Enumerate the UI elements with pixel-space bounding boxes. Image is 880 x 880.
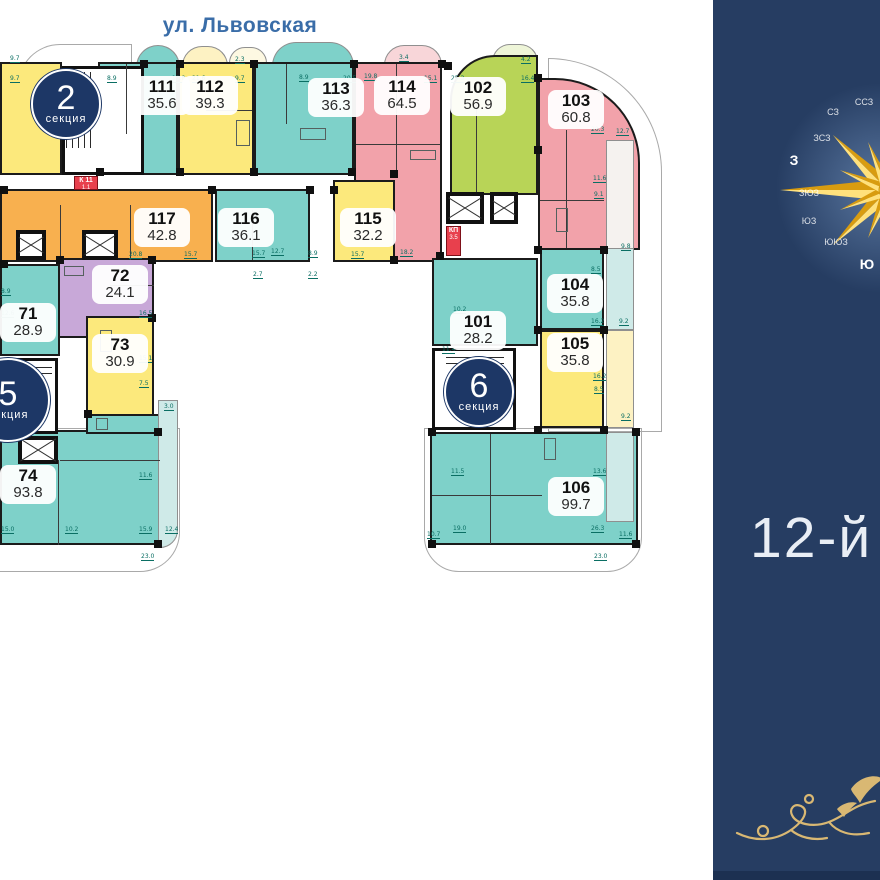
- structural-column: [84, 410, 92, 418]
- structural-column: [632, 540, 640, 548]
- unit-number: 114: [380, 78, 424, 96]
- bath-fixture: [410, 150, 436, 160]
- dimension-label: 8.5: [594, 386, 604, 394]
- section-word: секция: [459, 401, 500, 413]
- unit-label-116[interactable]: 116 36.1: [218, 208, 274, 247]
- dimension-label: 11.6: [593, 175, 606, 183]
- unit-number: 73: [98, 336, 142, 354]
- structural-column: [96, 168, 104, 176]
- unit-area: 35.8: [553, 353, 597, 369]
- section-number: 5: [0, 379, 17, 409]
- structural-column: [600, 326, 608, 334]
- structural-column: [176, 60, 184, 68]
- service-room-k11: К 11 1.1: [74, 176, 98, 190]
- unit-number: 74: [6, 467, 50, 485]
- structural-column: [154, 540, 162, 548]
- unit-area: 56.9: [456, 97, 500, 113]
- unit-area: 28.2: [456, 331, 500, 347]
- dimension-label: 12.7: [271, 248, 284, 256]
- balcony-103: [606, 140, 634, 250]
- dimension-label: 26.3: [591, 525, 604, 533]
- sidebar: ССЗСЗЗСЗЗЗЮЗЮЗЮЮЗЮ 12-й: [713, 0, 880, 880]
- partition: [60, 460, 160, 461]
- unit-number: 105: [553, 335, 597, 353]
- dimension-label: 2.7: [253, 271, 263, 279]
- dimension-label: 8.9: [308, 250, 318, 258]
- compass-direction-ЮЮЗ: ЮЮЗ: [824, 237, 848, 247]
- dimension-label: 9.2: [621, 413, 631, 421]
- unit-number: 72: [98, 267, 142, 285]
- structural-column: [436, 252, 444, 260]
- dimension-label: 11.6: [619, 531, 632, 539]
- unit-label-117[interactable]: 117 42.8: [134, 208, 190, 247]
- unit-area: 28.9: [6, 323, 50, 339]
- structural-column: [534, 146, 542, 154]
- elevator-3: [16, 230, 46, 260]
- compass-direction-ЗСЗ: ЗСЗ: [813, 133, 830, 143]
- unit-number: 113: [314, 80, 358, 98]
- partition: [286, 64, 287, 124]
- structural-column: [208, 186, 216, 194]
- section-word: секция: [0, 409, 28, 421]
- compass-direction-ЗЮЗ: ЗЮЗ: [799, 188, 819, 198]
- unit-number: 104: [553, 276, 597, 294]
- structural-column: [250, 168, 258, 176]
- service-room-label: КП: [447, 227, 460, 235]
- unit-number: 111: [140, 78, 184, 96]
- dimension-label: 7.5: [139, 380, 149, 388]
- unit-area: 30.9: [98, 354, 142, 370]
- elevator-5: [18, 436, 58, 464]
- dimension-label: 3.0: [164, 403, 174, 411]
- elevator-2: [490, 192, 518, 224]
- dimension-label: 12.4: [165, 526, 178, 534]
- dimension-label: 18.2: [400, 249, 413, 257]
- unit-area: 35.6: [140, 96, 184, 112]
- unit-label-74[interactable]: 74 93.8: [0, 465, 56, 504]
- structural-column: [428, 428, 436, 436]
- dimension-label: 23.0: [141, 553, 154, 561]
- unit-label-106[interactable]: 106 99.7: [548, 477, 604, 516]
- service-room-kp: КП 3.5: [446, 226, 461, 256]
- structural-column: [534, 426, 542, 434]
- dimension-label: 8.5: [591, 266, 601, 274]
- section-6-badge: 6 секция: [444, 357, 514, 427]
- unit-number: 101: [456, 313, 500, 331]
- elevator-1: [446, 192, 484, 224]
- dimension-label: 8.9: [1, 288, 11, 296]
- dimension-label: 10.2: [65, 526, 78, 534]
- structural-column: [330, 186, 338, 194]
- structural-column: [56, 256, 64, 264]
- floor-number-label: 12-й: [750, 505, 872, 571]
- dimension-label: 12.7: [616, 128, 629, 136]
- dimension-label: 23.0: [594, 553, 607, 561]
- dimension-label: 9.7: [10, 75, 20, 83]
- unit-label-103[interactable]: 103 60.8: [548, 90, 604, 129]
- dimension-label: 13.6: [593, 468, 606, 476]
- partition: [356, 144, 440, 145]
- structural-column: [0, 260, 8, 268]
- unit-number: 106: [554, 479, 598, 497]
- structural-column: [534, 246, 542, 254]
- structural-column: [428, 540, 436, 548]
- sidebar-bottom-strip: [713, 871, 880, 880]
- bath-fixture: [64, 266, 84, 276]
- service-room-label: К 11: [75, 177, 97, 185]
- dimension-label: 9.2: [619, 318, 629, 326]
- compass-direction-ЮЗ: ЮЗ: [802, 216, 817, 226]
- structural-column: [148, 256, 156, 264]
- structural-column: [632, 428, 640, 436]
- compass-direction-З: З: [790, 152, 799, 168]
- partition: [540, 200, 604, 201]
- dimension-label: 16.4: [521, 75, 534, 83]
- structural-column: [350, 60, 358, 68]
- unit-number: 116: [224, 210, 268, 228]
- structural-column: [306, 186, 314, 194]
- dimension-label: 11.6: [139, 472, 152, 480]
- unit-area: 42.8: [140, 228, 184, 244]
- unit-label-73[interactable]: 73 30.9: [92, 334, 148, 373]
- unit-label-113[interactable]: 113 36.3: [308, 78, 364, 117]
- structural-column: [534, 326, 542, 334]
- section-number: 2: [57, 83, 76, 113]
- unit-number: 102: [456, 79, 500, 97]
- partition: [490, 434, 491, 544]
- dimension-label: 9.8: [621, 243, 631, 251]
- dimension-label: 4.2: [521, 56, 531, 64]
- structural-column: [390, 256, 398, 264]
- dimension-label: 19.0: [453, 525, 466, 533]
- unit-number: 115: [346, 210, 390, 228]
- dimension-label: 16.5: [139, 310, 152, 318]
- structural-column: [390, 170, 398, 178]
- unit-label-71[interactable]: 71 28.9: [0, 303, 56, 342]
- balcony-106: [606, 432, 634, 522]
- structural-column: [600, 426, 608, 434]
- unit-area: 93.8: [6, 485, 50, 501]
- structural-column: [250, 60, 258, 68]
- compass-direction-СЗ: СЗ: [827, 107, 839, 117]
- unit-label-112[interactable]: 112 39.3: [182, 76, 238, 115]
- dimension-label: 10.7: [427, 531, 440, 539]
- unit-number: 112: [188, 78, 232, 96]
- service-room-area: 3.5: [447, 235, 460, 242]
- unit-area: 35.8: [553, 294, 597, 310]
- dimension-label: 15.9: [139, 526, 152, 534]
- page: ул. Львовская: [0, 0, 880, 880]
- section-2-badge: 2 секция: [31, 69, 101, 139]
- unit-area: 24.1: [98, 285, 142, 301]
- flourish-ornament-icon: [733, 775, 880, 855]
- service-room-area: 1.1: [75, 185, 97, 190]
- street-label: ул. Львовская: [110, 14, 370, 38]
- bath-fixture: [236, 120, 250, 146]
- structural-column: [348, 168, 356, 176]
- partition: [126, 64, 127, 134]
- unit-number: 117: [140, 210, 184, 228]
- section-word: секция: [46, 113, 87, 125]
- dimension-label: 2.2: [308, 271, 318, 279]
- section-number: 6: [470, 371, 489, 401]
- dimension-label: 15.0: [1, 526, 14, 534]
- unit-area: 32.2: [346, 228, 390, 244]
- structural-column: [534, 74, 542, 82]
- dimension-label: 11.5: [451, 468, 464, 476]
- structural-column: [140, 60, 148, 68]
- compass-direction-Ю: Ю: [860, 256, 874, 272]
- dimension-label: 9.7: [10, 55, 20, 63]
- partition: [60, 205, 61, 260]
- dimension-label: 2.3: [235, 56, 245, 64]
- unit-area: 36.1: [224, 228, 268, 244]
- dimension-label: 8.9: [299, 74, 309, 82]
- dimension-label: 16.2: [593, 373, 606, 381]
- bath-fixture: [556, 208, 568, 232]
- floor-plan: ул. Львовская: [0, 0, 713, 880]
- unit-label-115[interactable]: 115 32.2: [340, 208, 396, 247]
- dimension-label: 15.7: [252, 250, 265, 258]
- dimension-label: 15.7: [184, 251, 197, 259]
- structural-column: [154, 428, 162, 436]
- unit-area: 36.3: [314, 98, 358, 114]
- partition: [58, 460, 59, 545]
- unit-number: 103: [554, 92, 598, 110]
- dimension-label: 15.7: [351, 251, 364, 259]
- dimension-label: 8.9: [107, 75, 117, 83]
- dimension-label: 9.1: [594, 191, 604, 199]
- elevator-4: [82, 230, 118, 260]
- partition: [432, 495, 542, 496]
- dimension-label: 20.8: [129, 251, 142, 259]
- unit-area: 64.5: [380, 96, 424, 112]
- unit-area: 60.8: [554, 110, 598, 126]
- bath-fixture: [300, 128, 326, 140]
- unit-label-72[interactable]: 72 24.1: [92, 265, 148, 304]
- structural-column: [0, 186, 8, 194]
- compass-direction-ССЗ: ССЗ: [855, 97, 873, 107]
- unit-area: 99.7: [554, 497, 598, 513]
- structural-column: [176, 168, 184, 176]
- structural-column: [444, 62, 452, 70]
- unit-number: 71: [6, 305, 50, 323]
- bath-fixture: [544, 438, 556, 460]
- unit-area: 39.3: [188, 96, 232, 112]
- unit-label-102[interactable]: 102 56.9: [450, 77, 506, 116]
- dimension-label: 16.2: [591, 318, 604, 326]
- dimension-label: 3.4: [399, 54, 409, 62]
- unit-label-104[interactable]: 104 35.8: [547, 274, 603, 313]
- unit-label-114[interactable]: 114 64.5: [374, 76, 430, 115]
- unit-label-101[interactable]: 101 28.2: [450, 311, 506, 350]
- structural-column: [600, 246, 608, 254]
- bath-fixture: [96, 418, 108, 430]
- unit-label-105[interactable]: 105 35.8: [547, 333, 603, 372]
